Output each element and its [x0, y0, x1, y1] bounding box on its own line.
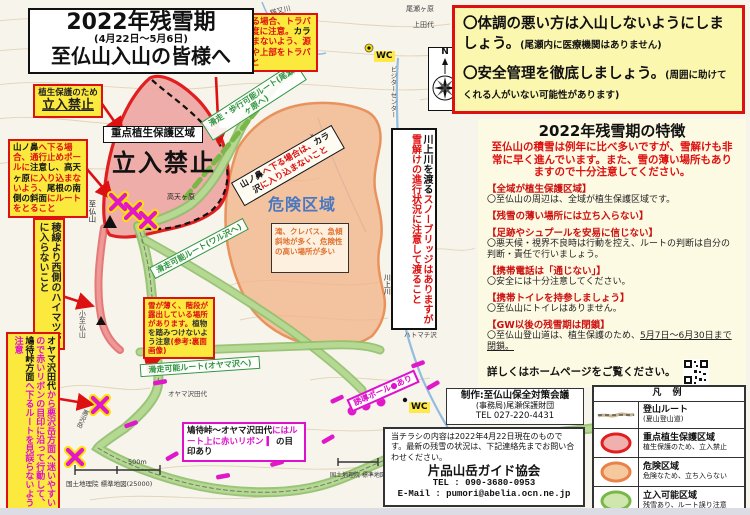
features-item-4: 【携帯電話は「通じない」】 〇安全には十分注意してください。 — [487, 266, 737, 288]
annotation-protect-no-entry: 植生保護のため 立入禁止 — [33, 84, 103, 118]
place-koshibutsusan: 小至仏山 — [78, 310, 85, 350]
contact-email: E-Mail : pumori@abelia.ocn.ne.jp — [391, 489, 577, 500]
annotation-protect-line2: 立入禁止 — [38, 98, 98, 114]
features-item-5-head: 【携帯トイレを持参しましょう】 — [487, 293, 737, 304]
features-item-3: 【足跡やシュプールを安易に信じない】 〇悪天候・視界不良時は行動を控え、ルートの… — [487, 228, 737, 261]
features-item-2: 【残雪の薄い場所には立ち入らない】 — [487, 211, 737, 222]
legend-symbol-protected-zone — [594, 429, 639, 457]
map-credit-left: 国土地理院 標準地図(25000) — [66, 478, 152, 488]
contact-org: 片品山岳ガイド協会 — [391, 463, 577, 478]
poster-root: 尾瀬ヶ原 上田代 猫又川 山ノ鼻 ビジターセンター 高天ヶ原 至仏山 小至仏山 … — [0, 0, 750, 515]
place-kawakamigawa: 川上川 — [383, 274, 390, 308]
production-line1: 制作:至仏山保全対策会議 — [447, 390, 583, 401]
scale-label: 500m — [128, 458, 147, 466]
legend-row-protected: 重点植生保護区域 植生保護のため、立入禁止 — [594, 428, 744, 457]
annotation-protect-line1: 植生保護のため — [38, 88, 98, 98]
features-item-3-head: 【足跡やシュプールを安易に信じない】 — [487, 228, 737, 239]
features-item-4-body: 〇安全には十分注意してください。 — [487, 277, 737, 288]
legend-trail-desc: (夏山登山道) — [643, 416, 688, 424]
annotation-yamanohana-pole: 山ノ鼻へ下る場合、通行止めポールに注意し、高天ヶ原に入り込まないよう、尾根の南側… — [8, 139, 88, 218]
danger-zone-title: 危険区域 — [268, 191, 336, 215]
legend-protected-desc: 植生保護のため、立入禁止 — [643, 444, 727, 452]
annotation-snow-bridge: 川上川を渡るスノーブリッジはありますが雪解けの進行状況に注意して渡ること — [391, 128, 437, 330]
features-item-5: 【携帯トイレを持参しましょう】 〇至仏山にトイレはありません。 — [487, 293, 737, 315]
protected-zone-no-entry: 立入禁止 — [106, 143, 222, 178]
closed-red-route — [98, 228, 120, 350]
contact-box: 当チラシの内容は2022年4月22日現在のものです。最新の残雪の状況は、下記連絡… — [383, 427, 585, 507]
features-footer: 詳しくはホームページをご覧ください。 — [487, 364, 675, 379]
warning-panel: 〇体調の悪い方は入山しないようにしましょう。(尾瀬内に医療機関はありません) 〇… — [452, 5, 745, 114]
contact-tel: TEL : 090-3680-0953 — [391, 478, 577, 489]
features-item-3-body: 〇悪天候・視界不良時は行動を控え、ルートの判断は自分の判断・責任で行いましょう。 — [487, 239, 737, 261]
features-item-1-head: 【全域が植生保護区域】 — [487, 184, 737, 195]
annotation-haimatsu: 稜線より西側のハイマツ帯に入らないこと — [33, 218, 65, 350]
wc-marker-hatomachi: WC — [409, 402, 430, 413]
features-item-2-head: 【残雪の薄い場所には立ち入らない】 — [487, 211, 737, 222]
features-item-1-body: 〇至仏山の周辺は、全域が植生保護区域です。 — [487, 195, 737, 206]
contact-body: 当チラシの内容は2022年4月22日現在のものです。最新の残雪の状況は、下記連絡… — [391, 432, 577, 463]
place-takatengahara: 高天ヶ原 — [167, 194, 195, 201]
title-line1: 2022年残雪期 — [30, 12, 252, 34]
place-hatomachisawa: ハトマチ沢 — [404, 332, 437, 339]
annotation-thin-snow-steps: 雪が薄く、階段が露出している場所があります。植物を踏みつけないよう注意(参考:裏… — [143, 297, 215, 359]
place-ozegahara: 尾瀬ヶ原 — [406, 6, 434, 13]
features-item-4-head: 【携帯電話は「通じない」】 — [487, 266, 737, 277]
protected-zone-title: 重点植生保護区域 — [103, 126, 203, 143]
legend-danger-desc: 危険なため、立ち入らない — [643, 473, 727, 481]
annotation-oyamasawa-ribbon: オヤマ沢田代から悪沢岳方面へ迷いやすいので赤いリボンの目印に沿って行動して、鳩待… — [6, 332, 60, 512]
place-visitor-center: ビジターセンター — [389, 66, 396, 126]
features-item-6-head: 【GW以後の残雪期は閉鎖】 — [487, 320, 737, 331]
danger-zone-note: 滝、クレバス、急傾斜地が多く、危険性の高い場所が多い — [271, 223, 349, 273]
place-oyamasawatashiro: オヤマ沢田代 — [168, 391, 207, 398]
production-line3: TEL 027-220-4431 — [447, 411, 583, 421]
features-title: 2022年残雪期の特徴 — [487, 123, 737, 140]
title-box: 2022年残雪期 (4月22日〜5月6日) 至仏山入山の皆様へ — [28, 8, 254, 74]
title-line3: 至仏山入山の皆様へ — [30, 45, 252, 67]
place-shibutsusan: 至仏山 — [88, 200, 96, 234]
annotation-hatomachi-ribbon: 鳩待峠〜オヤマ沢田代にはルート上に赤いリボン ▍ の目印あり — [182, 422, 306, 462]
production-line2: (事務局)尾瀬保護財団 — [447, 401, 583, 411]
legend-symbol-danger-zone — [594, 458, 639, 486]
legend-symbol-trail — [594, 402, 639, 428]
features-item-1: 【全域が植生保護区域】 〇至仏山の周辺は、全域が植生保護区域です。 — [487, 184, 737, 206]
legend-row-trail: 登山ルート (夏山登山道) — [594, 401, 744, 428]
warning-item2: 〇安全管理を徹底しましょう。 — [463, 66, 665, 82]
features-item-6: 【GW以後の残雪期は閉鎖】 〇至仏山登山道は、植生保護のため、5月7日〜6月30… — [487, 320, 737, 353]
legend-row-danger: 危険区域 危険なため、立ち入らない — [594, 457, 744, 486]
place-kamitashiro: 上田代 — [413, 22, 434, 29]
features-intro: 至仏山の積雪は例年に比べ多いですが、雪解けも非常に早く進んでいます。また、雪の薄… — [487, 141, 737, 179]
warning-item1-note: (尾瀬内に医療機関はありません) — [520, 40, 661, 51]
features-panel: 2022年残雪期の特徴 至仏山の積雪は例年に比べ多いですが、雪解けも非常に早く進… — [478, 119, 746, 387]
features-item-5-body: 〇至仏山にトイレはありません。 — [487, 304, 737, 315]
legend-box: 凡 例 登山ルート (夏山登山道) 重点植生保護区域 植生保護のため、立入禁止 — [592, 385, 746, 512]
features-item-6-body: 〇至仏山登山道は、植生保護のため、 — [487, 331, 640, 341]
page-bottom-strip — [0, 508, 750, 515]
production-box: 制作:至仏山保全対策会議 (事務局)尾瀬保護財団 TEL 027-220-443… — [446, 388, 584, 425]
legend-title: 凡 例 — [594, 387, 744, 401]
qr-code-icon — [683, 359, 709, 385]
wc-marker-yamanohana: WC — [374, 51, 395, 62]
